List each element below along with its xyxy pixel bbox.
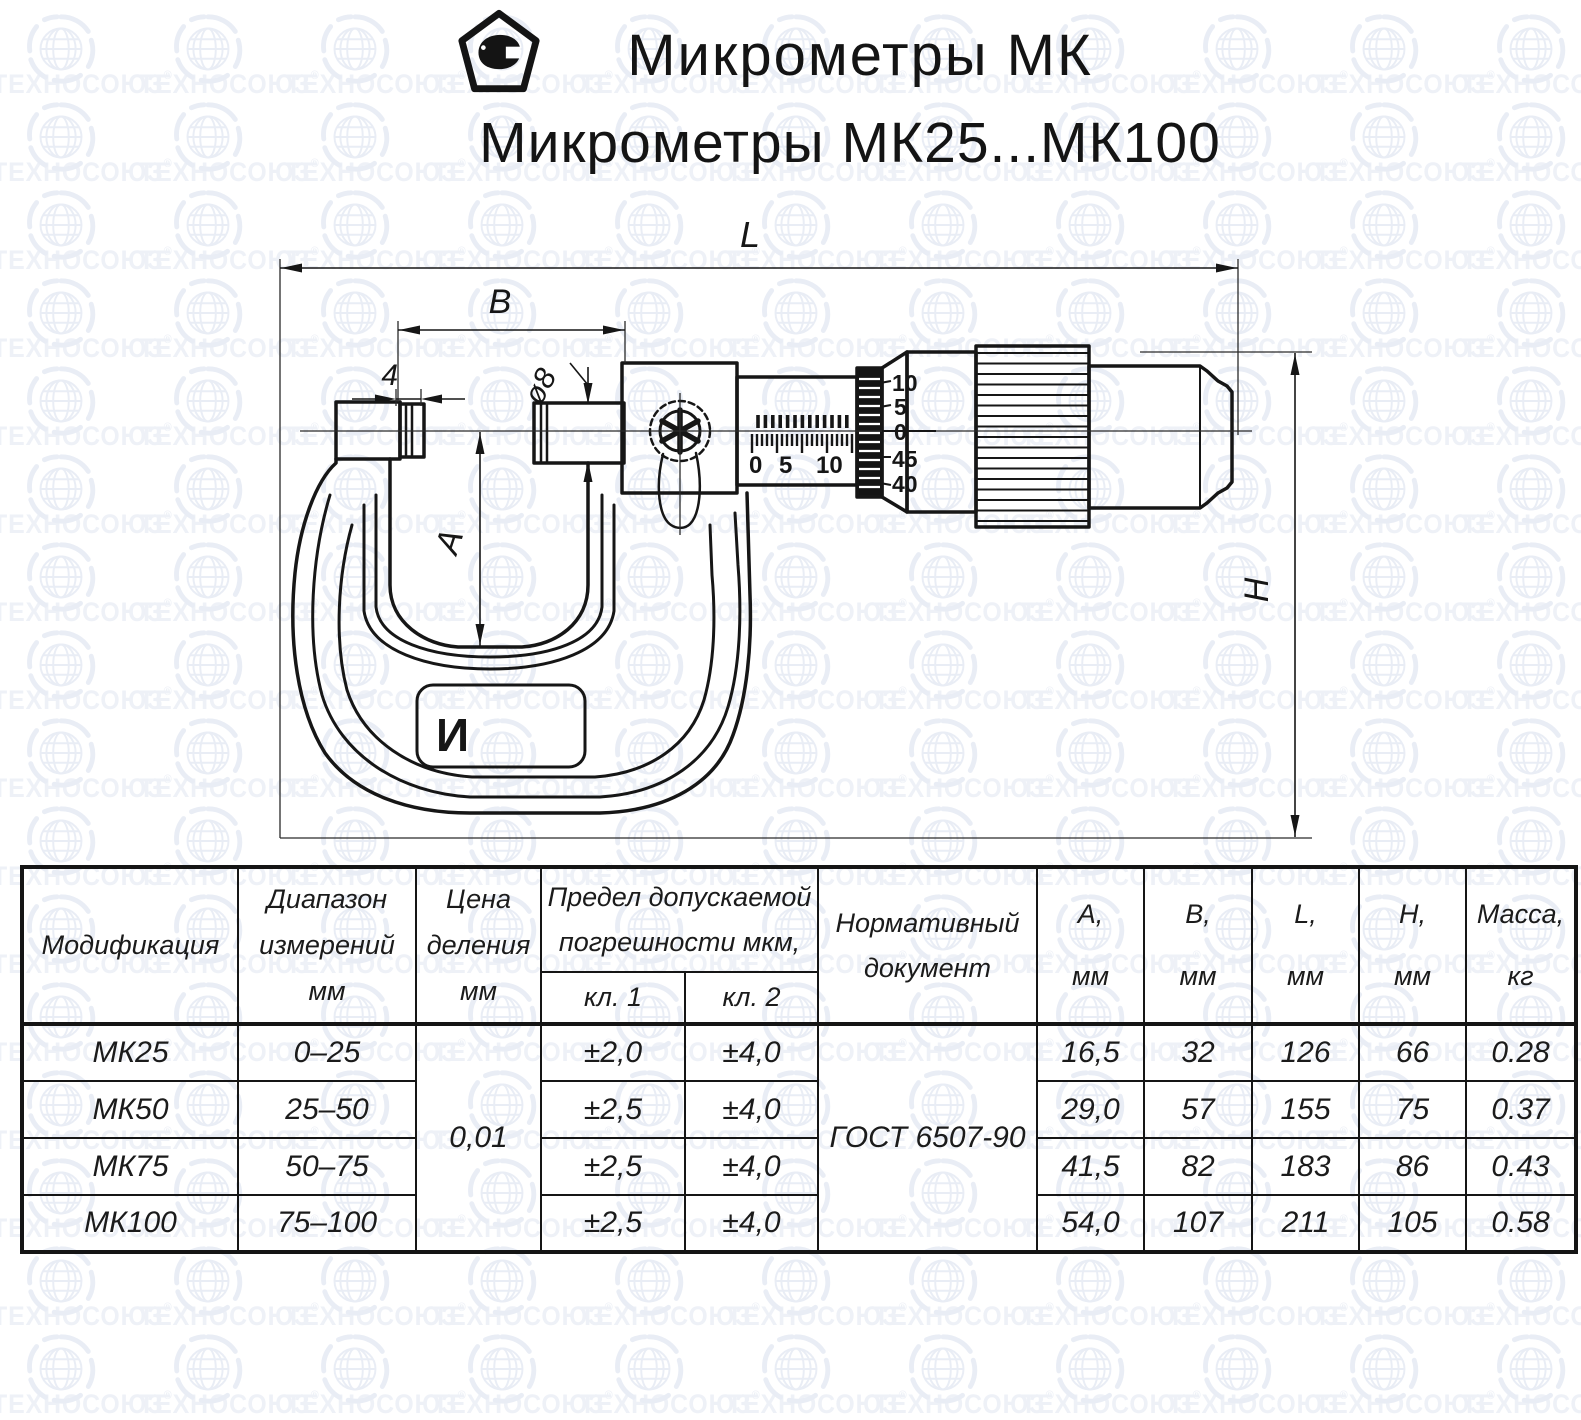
dim-A-label: A: [427, 525, 471, 560]
cell-L: 155: [1252, 1081, 1359, 1138]
watermark-text: ТЕХНОСОЮЗ®: [1021, 1388, 1202, 1420]
watermark-text: ТЕХНОСОЮЗ®: [1168, 1300, 1349, 1332]
dim-4-label: 4: [381, 359, 398, 392]
watermark-text: ТЕХНОСОЮЗ®: [874, 1388, 1055, 1420]
table-row: МК25 0–25 0,01 ±2,0 ±4,0 ГОСТ 6507-90 16…: [22, 1024, 1576, 1081]
cell-B: 57: [1144, 1081, 1252, 1138]
watermark-text: ТЕХНОСОЮЗ®: [1462, 1300, 1581, 1332]
cell-cl2: ±4,0: [685, 1024, 818, 1081]
brand-logo: [455, 6, 543, 102]
globe-watermark-icon: [316, 1330, 394, 1408]
watermark-text: ТЕХНОСОЮЗ®: [1168, 1388, 1349, 1420]
cell-division-value: 0,01: [416, 1024, 541, 1252]
col-header-L: L,мм: [1252, 867, 1359, 1024]
thimble-number-0: 0: [894, 419, 907, 445]
thimble-number-10: 10: [892, 370, 918, 396]
watermark-text: ТЕХНОСОЮЗ®: [433, 1388, 614, 1420]
cell-cl2: ±4,0: [685, 1195, 818, 1252]
watermark-text: ТЕХНОСОЮЗ®: [139, 1300, 320, 1332]
col-header-H: Н,мм: [1359, 867, 1466, 1024]
frame-outline: [293, 402, 751, 813]
watermark-text: ТЕХНОСОЮЗ®: [1462, 1388, 1581, 1420]
col-header-modification: Модификация: [22, 867, 238, 1024]
watermark-text: ТЕХНОСОЮЗ®: [874, 1300, 1055, 1332]
cell-model: МК100: [22, 1195, 238, 1252]
table-row: МК50 25–50 ±2,5 ±4,0 29,0 57 155 75 0.37: [22, 1081, 1576, 1138]
globe-watermark-icon: [610, 1330, 688, 1408]
cell-model: МК25: [22, 1024, 238, 1081]
globe-watermark-icon: [1198, 1330, 1276, 1408]
globe-watermark-icon: [904, 1330, 982, 1408]
cell-cl1: ±2,0: [541, 1024, 685, 1081]
cell-mass: 0.37: [1466, 1081, 1576, 1138]
watermark-text: ТЕХНОСОЮЗ®: [1315, 1388, 1496, 1420]
dim-B-label: B: [489, 283, 512, 321]
badge-mark: И: [436, 709, 469, 761]
sleeve-number-10: 10: [816, 452, 843, 479]
globe-watermark-icon: [757, 1330, 835, 1408]
watermark-text: ТЕХНОСОЮЗ®: [0, 1388, 173, 1420]
globe-watermark-icon: [463, 1330, 541, 1408]
cell-L: 126: [1252, 1024, 1359, 1081]
cell-A: 16,5: [1037, 1024, 1144, 1081]
watermark-text: ТЕХНОСОЮЗ®: [580, 1300, 761, 1332]
watermark-text: ТЕХНОСОЮЗ®: [139, 1388, 320, 1420]
cell-model: МК75: [22, 1138, 238, 1195]
cell-B: 32: [1144, 1024, 1252, 1081]
cell-B: 82: [1144, 1138, 1252, 1195]
cell-mass: 0.43: [1466, 1138, 1576, 1195]
cell-cl1: ±2,5: [541, 1081, 685, 1138]
cell-A: 29,0: [1037, 1081, 1144, 1138]
watermark-text: ТЕХНОСОЮЗ®: [727, 1388, 908, 1420]
col-header-range: Диапазон измерений мм: [238, 867, 416, 1024]
col-header-class1: кл. 1: [541, 972, 685, 1024]
col-header-mass: Масса,кг: [1466, 867, 1576, 1024]
page-title: Микрометры МК: [540, 22, 1180, 89]
thimble-number-40: 40: [892, 471, 918, 497]
globe-watermark-icon: [169, 1330, 247, 1408]
cell-L: 183: [1252, 1138, 1359, 1195]
col-header-A: А,мм: [1037, 867, 1144, 1024]
micrometer-drawing: L B 4 ø8 A H 0 5 10 10 5 0 45 40 И: [0, 195, 1581, 850]
cell-H: 105: [1359, 1195, 1466, 1252]
cell-mass: 0.58: [1466, 1195, 1576, 1252]
watermark-text: ТЕХНОСОЮЗ®: [580, 1388, 761, 1420]
table-row: МК100 75–100 ±2,5 ±4,0 54,0 107 211 105 …: [22, 1195, 1576, 1252]
watermark-text: ТЕХНОСОЮЗ®: [1021, 1300, 1202, 1332]
col-header-class2: кл. 2: [685, 972, 818, 1024]
col-header-B: В,мм: [1144, 867, 1252, 1024]
col-header-normative: Нормативный документ: [818, 867, 1037, 1024]
cell-cl1: ±2,5: [541, 1138, 685, 1195]
col-header-division: Цена деления мм: [416, 867, 541, 1024]
table-row: МК75 50–75 ±2,5 ±4,0 41,5 82 183 86 0.43: [22, 1138, 1576, 1195]
cell-H: 86: [1359, 1138, 1466, 1195]
page-subtitle: Микрометры МК25...МК100: [430, 110, 1270, 176]
watermark-text: ТЕХНОСОЮЗ®: [286, 1300, 467, 1332]
watermark-text: ТЕХНОСОЮЗ®: [0, 1300, 173, 1332]
globe-watermark-icon: [1051, 1330, 1129, 1408]
cell-H: 66: [1359, 1024, 1466, 1081]
cell-normative-value: ГОСТ 6507-90: [818, 1024, 1037, 1252]
watermark-text: ТЕХНОСОЮЗ®: [1315, 1300, 1496, 1332]
sleeve-number-0: 0: [749, 452, 762, 479]
cell-A: 54,0: [1037, 1195, 1144, 1252]
globe-watermark-icon: [22, 1330, 100, 1408]
thimble-number-45: 45: [892, 446, 918, 472]
watermark-text: ТЕХНОСОЮЗ®: [286, 1388, 467, 1420]
end-cap: [1089, 366, 1232, 508]
cell-cl2: ±4,0: [685, 1081, 818, 1138]
watermark-text: ТЕХНОСОЮЗ®: [727, 1300, 908, 1332]
cell-cl2: ±4,0: [685, 1138, 818, 1195]
cell-B: 107: [1144, 1195, 1252, 1252]
cell-range: 25–50: [238, 1081, 416, 1138]
cell-L: 211: [1252, 1195, 1359, 1252]
cell-range: 75–100: [238, 1195, 416, 1252]
cell-cl1: ±2,5: [541, 1195, 685, 1252]
dim-L-label: L: [740, 214, 760, 255]
cell-mass: 0.28: [1466, 1024, 1576, 1081]
cell-range: 0–25: [238, 1024, 416, 1081]
cell-A: 41,5: [1037, 1138, 1144, 1195]
sleeve-number-5: 5: [779, 452, 792, 479]
col-header-error-limit: Предел допускаемой погрешности мкм,: [541, 867, 818, 972]
cell-range: 50–75: [238, 1138, 416, 1195]
globe-watermark-icon: [1345, 1330, 1423, 1408]
cell-H: 75: [1359, 1081, 1466, 1138]
dim-H-label: H: [1238, 577, 1276, 602]
spec-table: Модификация Диапазон измерений мм Цена д…: [20, 865, 1578, 1254]
cell-model: МК50: [22, 1081, 238, 1138]
watermark-text: ТЕХНОСОЮЗ®: [433, 1300, 614, 1332]
thimble-number-5: 5: [894, 394, 907, 420]
globe-watermark-icon: [1492, 1330, 1570, 1408]
frame-throat: [390, 459, 588, 647]
